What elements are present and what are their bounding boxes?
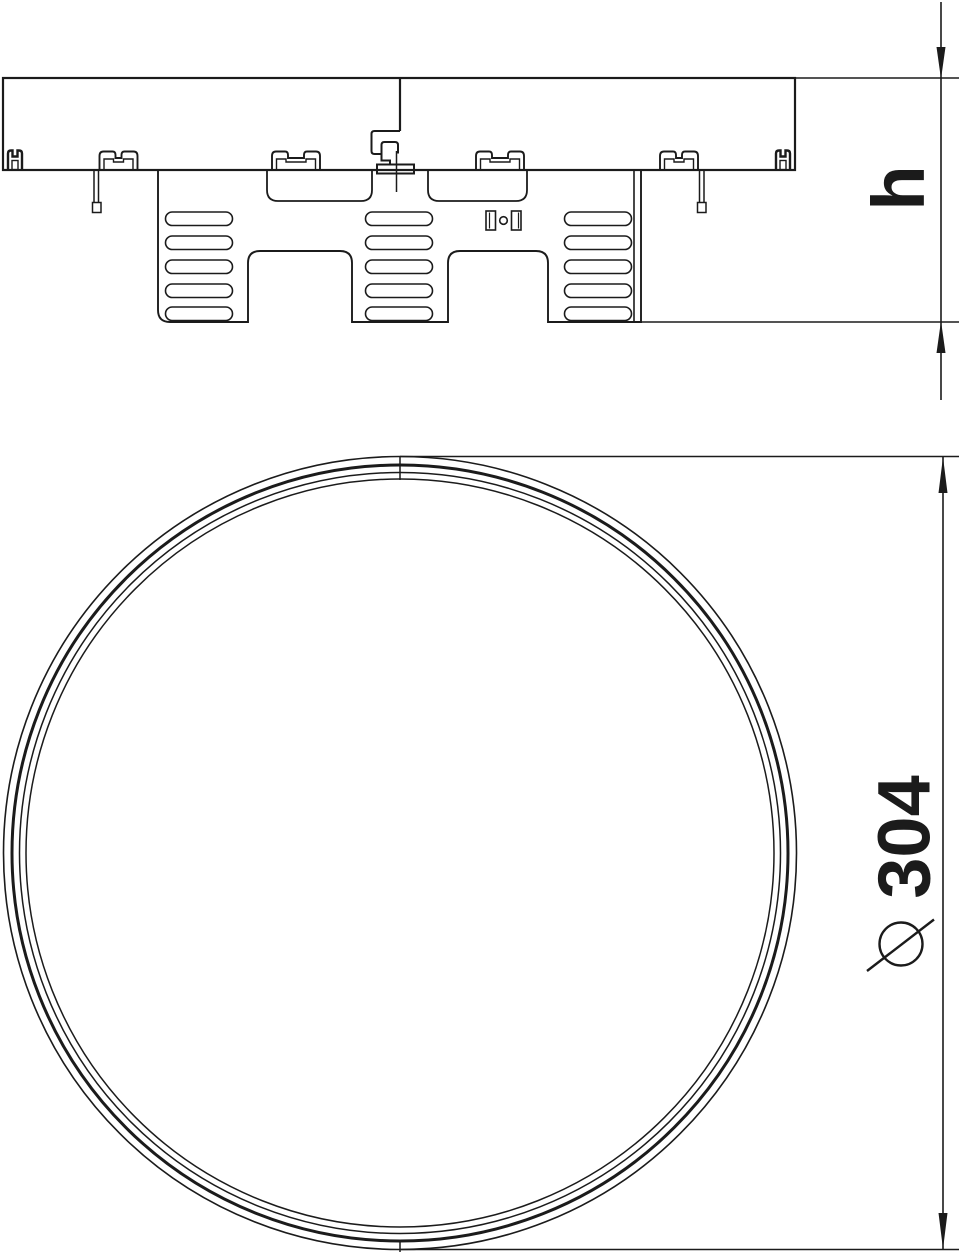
diameter-dimension-value: 304 bbox=[863, 775, 946, 898]
vent-slot-group-middle bbox=[366, 212, 433, 321]
arrowhead-up-icon bbox=[939, 457, 948, 493]
retaining-clip-pair bbox=[660, 152, 698, 170]
diameter-symbol bbox=[867, 920, 934, 972]
technical-drawing-page: h 304 bbox=[0, 0, 960, 1253]
vent-slot bbox=[565, 260, 632, 274]
diameter-dimension: 304 bbox=[400, 457, 959, 1250]
clip-inner bbox=[481, 159, 520, 170]
retaining-clip-pair bbox=[272, 152, 320, 170]
diameter-symbol-slash bbox=[867, 920, 934, 972]
vent-slot bbox=[166, 212, 233, 226]
vent-slot bbox=[565, 284, 632, 298]
height-dimension: h bbox=[641, 2, 959, 400]
guide-pin-right bbox=[698, 171, 707, 213]
height-dimension-label: h bbox=[857, 165, 940, 210]
vent-slot bbox=[366, 236, 433, 250]
recess-box bbox=[428, 170, 527, 201]
clip-inner bbox=[104, 159, 133, 170]
latch-plate bbox=[512, 211, 522, 230]
vent-slot bbox=[565, 212, 632, 226]
end-clip-notch bbox=[780, 161, 786, 170]
vent-slot bbox=[166, 284, 233, 298]
innermost-ring bbox=[26, 479, 774, 1227]
clip-inner bbox=[277, 159, 316, 170]
spring-clip-step bbox=[382, 154, 391, 165]
vent-slot bbox=[565, 307, 632, 321]
spring-clip-hook bbox=[372, 131, 401, 154]
clip-outer bbox=[100, 152, 138, 170]
vent-slot-group-left bbox=[166, 212, 233, 321]
clip-outer bbox=[476, 152, 524, 170]
vent-slot bbox=[166, 260, 233, 274]
outer-ring bbox=[4, 457, 797, 1250]
vent-slot-group-right bbox=[565, 212, 632, 321]
arrowhead-down-icon bbox=[937, 47, 946, 79]
heavy-ring bbox=[12, 465, 788, 1241]
clip-inner bbox=[665, 159, 694, 170]
vent-slot bbox=[366, 260, 433, 274]
skirt-outline bbox=[158, 170, 641, 322]
vent-slot bbox=[366, 284, 433, 298]
inner-ring bbox=[20, 473, 781, 1234]
pin-foot bbox=[93, 203, 102, 213]
vent-slot bbox=[565, 236, 632, 250]
vent-slot bbox=[166, 236, 233, 250]
latch-pivot-hole bbox=[500, 217, 508, 225]
vent-slot bbox=[366, 212, 433, 226]
center-spring-clip bbox=[372, 78, 415, 192]
latch-plate bbox=[486, 211, 496, 230]
arrowhead-down-icon bbox=[939, 1213, 948, 1249]
drawing-canvas: h 304 bbox=[0, 0, 960, 1253]
recess-box bbox=[267, 170, 372, 201]
vent-slot bbox=[166, 307, 233, 321]
retaining-clip-pair bbox=[100, 152, 138, 170]
end-clip-right bbox=[776, 151, 790, 170]
latch-detail bbox=[486, 211, 521, 230]
arrowhead-up-icon bbox=[937, 321, 946, 353]
clip-outer bbox=[272, 152, 320, 170]
end-clip-notch bbox=[12, 161, 18, 170]
vented-skirt bbox=[158, 170, 641, 322]
vent-slot bbox=[366, 307, 433, 321]
pin-foot bbox=[698, 203, 707, 213]
plan-view bbox=[4, 457, 797, 1253]
clip-outer bbox=[660, 152, 698, 170]
side-view bbox=[3, 78, 795, 322]
retaining-clip-pair bbox=[476, 152, 524, 170]
guide-pin-left bbox=[93, 171, 102, 213]
end-clip-left bbox=[8, 151, 22, 170]
